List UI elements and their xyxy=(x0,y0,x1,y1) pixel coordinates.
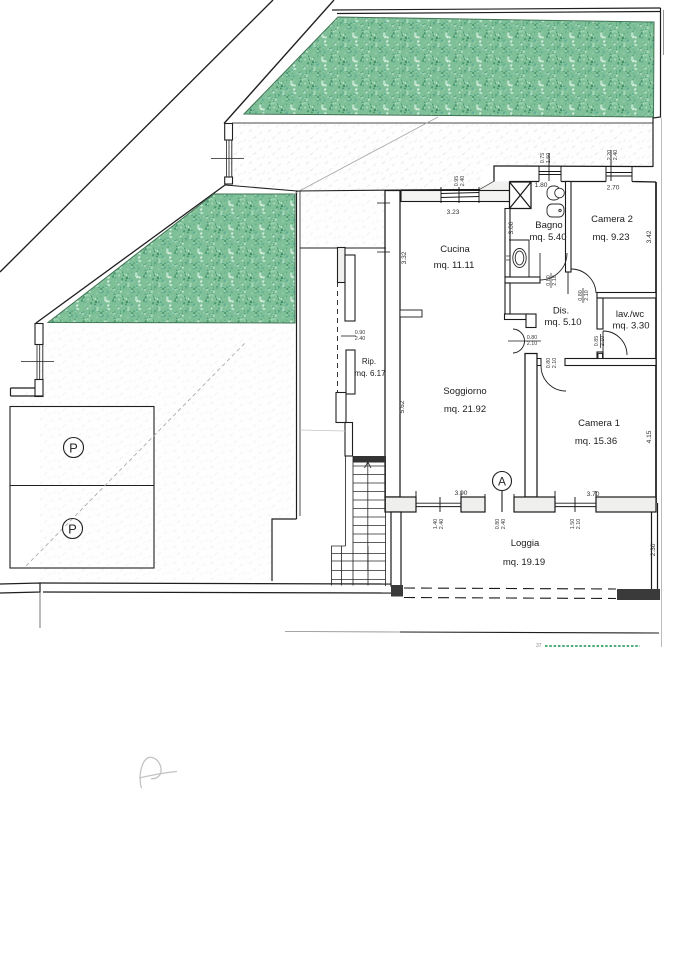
svg-text:3.90: 3.90 xyxy=(455,490,468,497)
svg-text:mq. 9.23: mq. 9.23 xyxy=(593,232,630,243)
svg-text:mq. 5.40: mq. 5.40 xyxy=(530,232,567,243)
svg-text:2.40: 2.40 xyxy=(439,519,445,530)
svg-text:2.10: 2.10 xyxy=(576,519,582,530)
svg-text:mq. 15.36: mq. 15.36 xyxy=(575,436,617,447)
svg-text:Loggia: Loggia xyxy=(511,538,540,549)
svg-text:37: 37 xyxy=(536,643,542,649)
svg-text:2.30: 2.30 xyxy=(650,543,657,556)
svg-text:2.40: 2.40 xyxy=(613,150,619,161)
svg-text:2.40: 2.40 xyxy=(501,519,507,530)
svg-text:2.10: 2.10 xyxy=(552,275,558,286)
svg-text:mq. 11.11: mq. 11.11 xyxy=(434,260,475,271)
svg-text:4.15: 4.15 xyxy=(646,430,653,443)
svg-text:Soggiorno: Soggiorno xyxy=(443,386,486,397)
svg-text:2.10: 2.10 xyxy=(552,358,558,369)
svg-text:2.70: 2.70 xyxy=(607,185,620,192)
svg-text:2.40: 2.40 xyxy=(460,176,466,187)
svg-text:mq. 3.30: mq. 3.30 xyxy=(613,321,650,332)
svg-text:3.42: 3.42 xyxy=(646,230,653,243)
svg-text:Rip.: Rip. xyxy=(362,357,376,366)
svg-text:Cucina: Cucina xyxy=(440,244,470,255)
svg-text:Dis.: Dis. xyxy=(553,306,569,317)
svg-text:2.10: 2.10 xyxy=(527,341,538,347)
svg-text:P: P xyxy=(68,522,77,537)
svg-text:A: A xyxy=(498,475,506,489)
svg-text:5.62: 5.62 xyxy=(399,400,406,413)
svg-text:mq. 21.92: mq. 21.92 xyxy=(444,404,486,415)
svg-text:P: P xyxy=(69,441,78,456)
svg-text:mq. 6.17: mq. 6.17 xyxy=(354,369,386,378)
svg-text:mq. 5.10: mq. 5.10 xyxy=(545,317,582,328)
svg-text:1.80: 1.80 xyxy=(535,182,548,189)
svg-text:3.70: 3.70 xyxy=(587,491,600,498)
svg-text:3.00: 3.00 xyxy=(508,221,515,234)
svg-text:2.40: 2.40 xyxy=(355,336,366,342)
svg-text:3.23: 3.23 xyxy=(447,209,460,216)
svg-text:1.50: 1.50 xyxy=(546,153,552,164)
svg-text:mq. 19.19: mq. 19.19 xyxy=(503,557,545,568)
svg-text:Bagno: Bagno xyxy=(535,220,562,231)
svg-text:2.10: 2.10 xyxy=(584,290,590,301)
svg-text:3.32: 3.32 xyxy=(401,251,408,264)
svg-text:Camera 1: Camera 1 xyxy=(578,418,620,429)
svg-text:Camera 2: Camera 2 xyxy=(591,214,633,225)
svg-text:2.10: 2.10 xyxy=(600,336,606,347)
svg-text:lav./wc: lav./wc xyxy=(616,309,645,320)
